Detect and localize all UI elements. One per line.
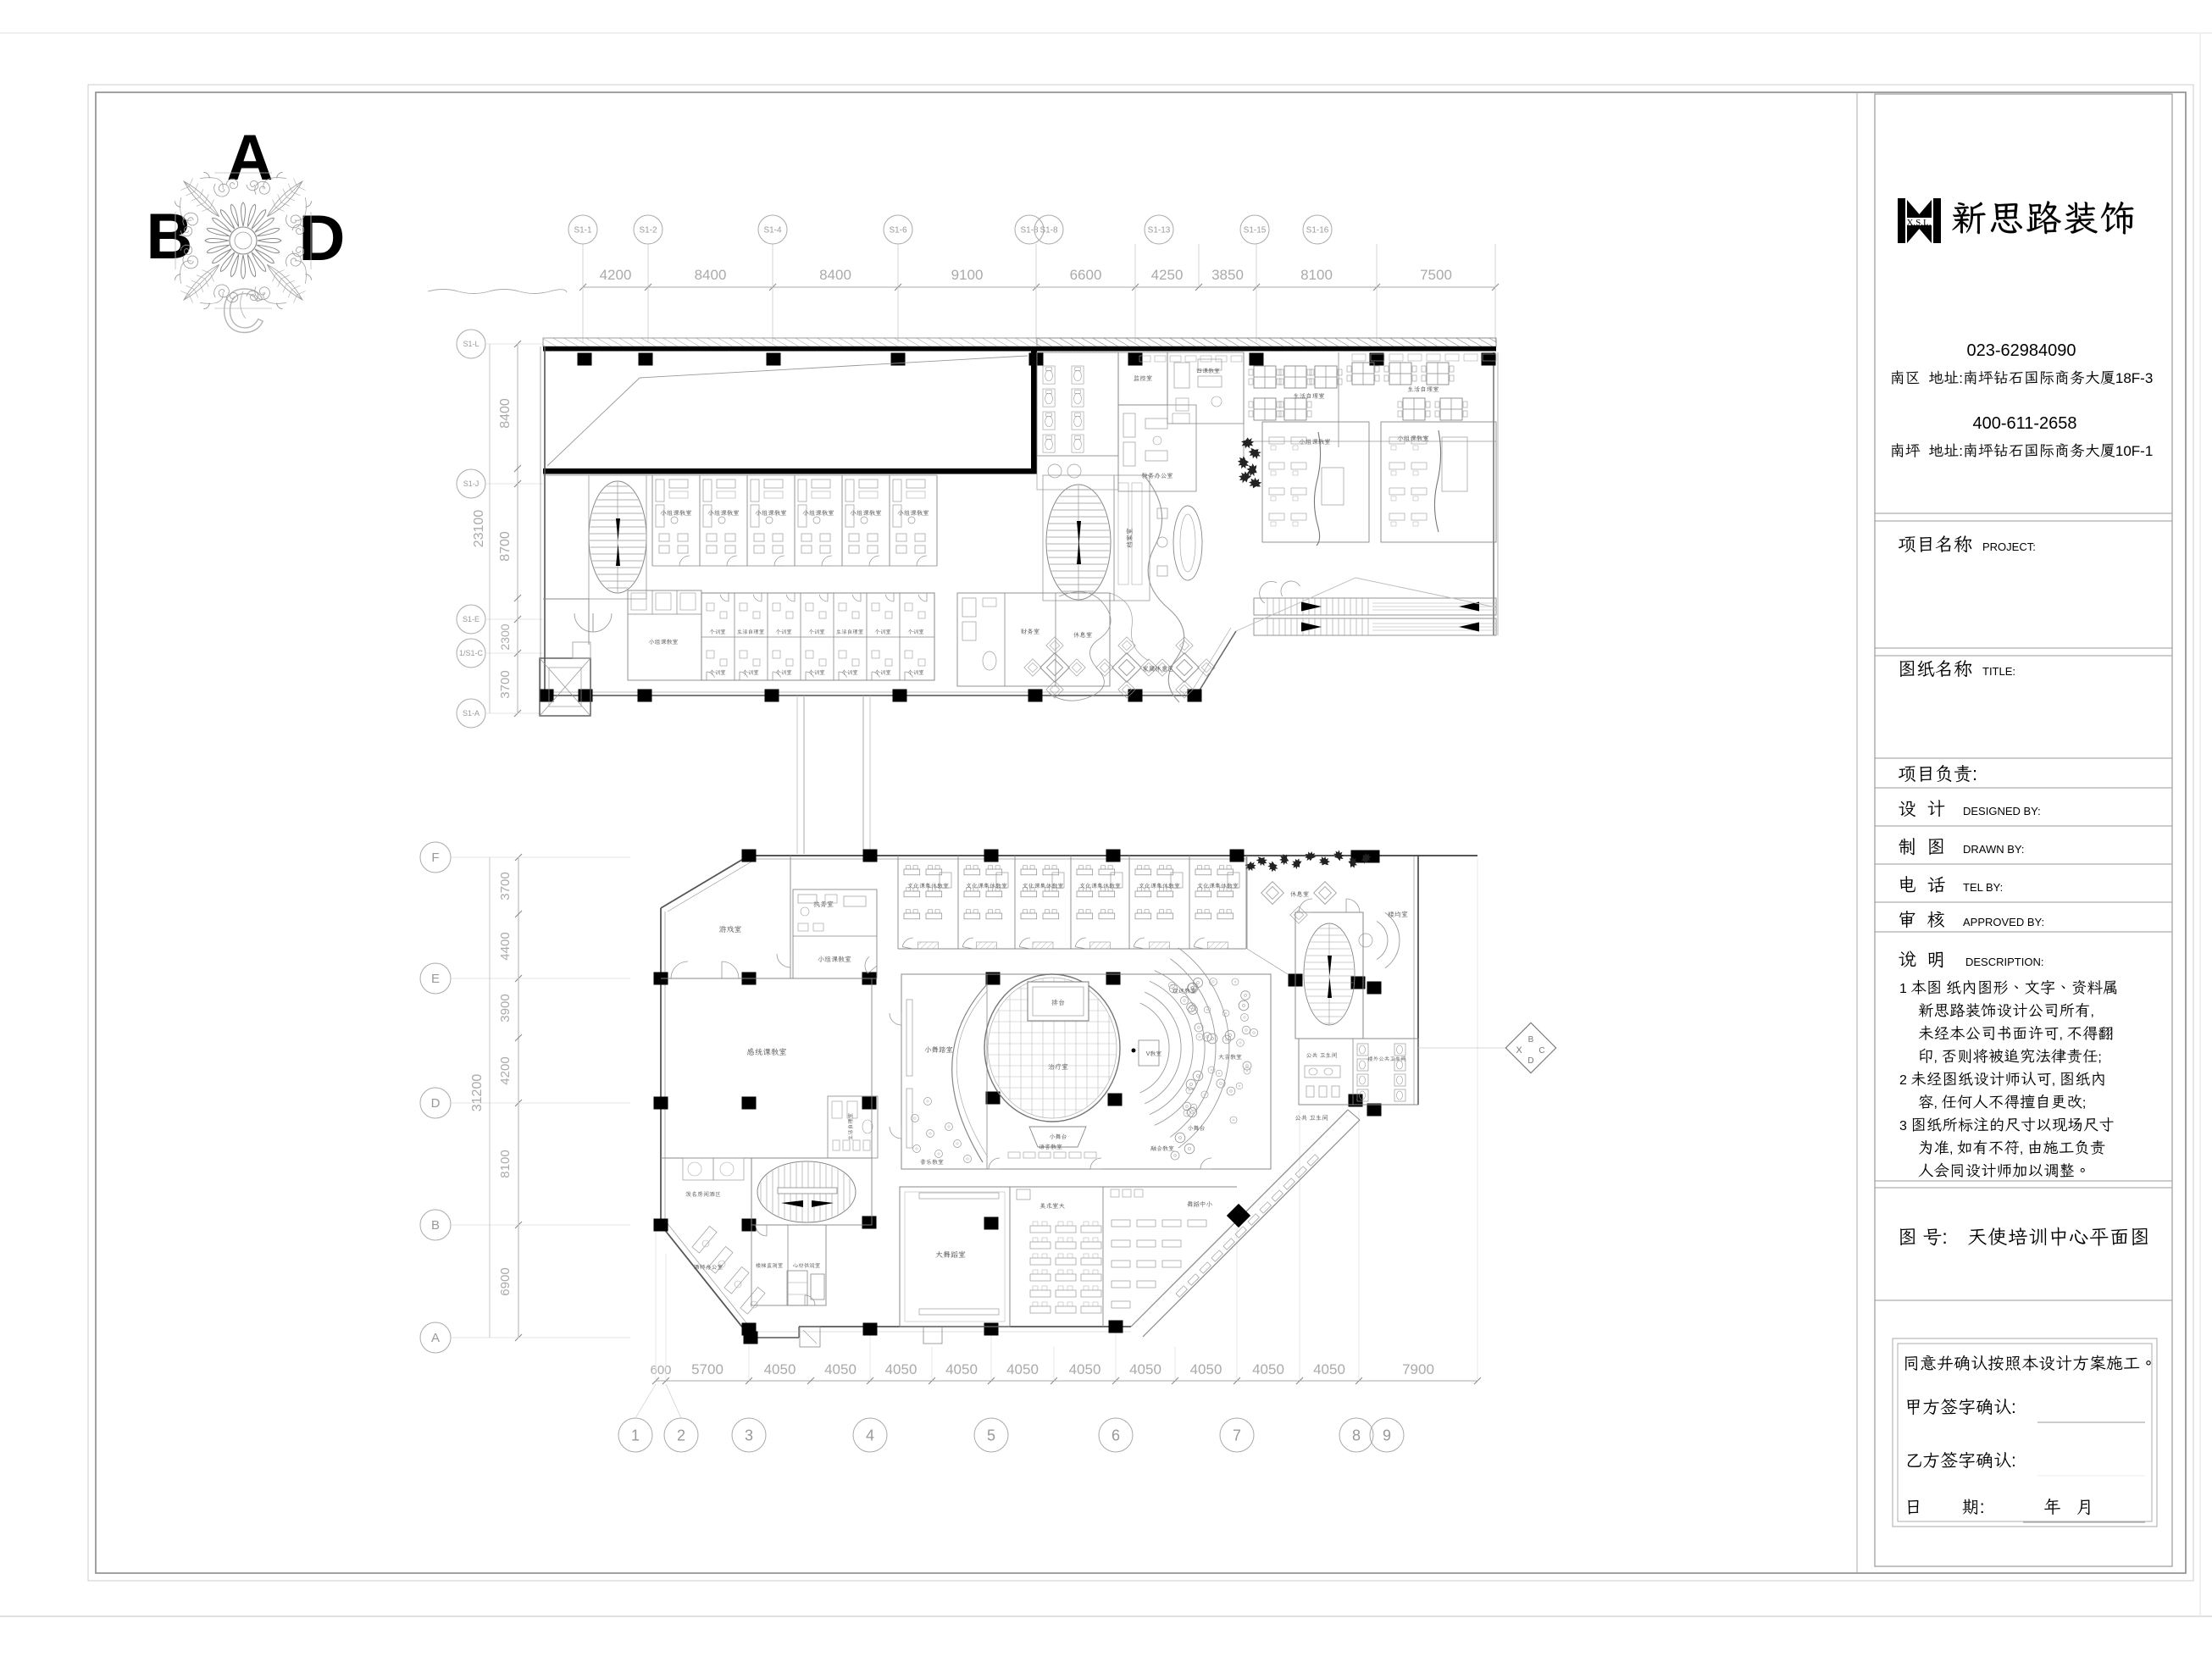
svg-text:X: X: [1516, 1045, 1522, 1056]
svg-text:S1-13: S1-13: [1148, 226, 1171, 236]
svg-text:S1-J: S1-J: [463, 479, 480, 488]
svg-text:1/S1-C: 1/S1-C: [459, 649, 484, 657]
svg-text:4050: 4050: [824, 1361, 857, 1377]
svg-text:,: ,: [2060, 1028, 2063, 1042]
svg-text:PROJECT:: PROJECT:: [1982, 540, 2036, 553]
svg-text:;: ;: [2098, 1050, 2101, 1065]
svg-text:4250: 4250: [1151, 267, 1184, 283]
svg-text:9: 9: [1383, 1427, 1391, 1444]
svg-text:APPROVED BY:: APPROVED BY:: [1963, 916, 2044, 928]
svg-text:8: 8: [1352, 1427, 1361, 1444]
svg-text:3700: 3700: [498, 872, 513, 900]
svg-text:4050: 4050: [945, 1361, 978, 1377]
svg-text:4050: 4050: [885, 1361, 918, 1377]
svg-text:2300: 2300: [498, 623, 512, 650]
svg-text::: :: [1972, 763, 1977, 784]
svg-text:F: F: [431, 851, 439, 865]
svg-text:8400: 8400: [695, 267, 727, 283]
svg-text:B: B: [147, 201, 193, 273]
svg-text:4200: 4200: [600, 267, 632, 283]
svg-text:S1-4: S1-4: [763, 226, 782, 236]
svg-text:4050: 4050: [764, 1361, 796, 1377]
svg-text::: :: [1959, 443, 1963, 459]
svg-text:1: 1: [1899, 982, 1907, 996]
svg-text:400-611-2658: 400-611-2658: [1972, 414, 2076, 433]
svg-text:,: ,: [2091, 1005, 2094, 1019]
svg-text:4050: 4050: [1006, 1361, 1039, 1377]
svg-text:3: 3: [1899, 1119, 1907, 1133]
svg-text:8700: 8700: [498, 531, 513, 562]
svg-text:8400: 8400: [819, 267, 851, 283]
svg-text:,: ,: [2052, 1073, 2055, 1088]
svg-text:6: 6: [1112, 1427, 1120, 1444]
svg-text:4050: 4050: [1069, 1361, 1101, 1377]
svg-text:6900: 6900: [498, 1267, 513, 1295]
svg-text:31200: 31200: [470, 1074, 485, 1112]
svg-text:4050: 4050: [1313, 1361, 1345, 1377]
svg-text:,: ,: [2020, 1142, 2023, 1156]
svg-text:;: ;: [2082, 1096, 2086, 1111]
svg-text:A: A: [431, 1331, 440, 1345]
svg-text:,: ,: [1949, 1142, 1953, 1156]
svg-text:X.S.L.: X.S.L.: [1906, 218, 1931, 228]
svg-text:S1-1: S1-1: [574, 226, 592, 236]
svg-text:DESCRIPTION:: DESCRIPTION:: [1965, 956, 2043, 968]
svg-text:8400: 8400: [498, 398, 513, 429]
svg-text:B: B: [431, 1218, 440, 1233]
svg-text:,: ,: [1934, 1096, 1938, 1111]
svg-text:TEL BY:: TEL BY:: [1963, 881, 2003, 894]
svg-text:B: B: [1528, 1035, 1534, 1045]
svg-text:V: V: [1146, 1051, 1150, 1057]
svg-text:4050: 4050: [1190, 1361, 1222, 1377]
svg-text:3850: 3850: [1211, 267, 1244, 283]
svg-text:D: D: [431, 1096, 441, 1111]
svg-text:600: 600: [650, 1363, 671, 1377]
svg-text::: :: [1959, 370, 1963, 386]
svg-text:DESIGNED BY:: DESIGNED BY:: [1963, 805, 2041, 817]
svg-text:7500: 7500: [1420, 267, 1452, 283]
svg-text:DRAWN BY:: DRAWN BY:: [1963, 843, 2024, 856]
svg-text:7: 7: [1233, 1427, 1241, 1444]
svg-text:TITLE:: TITLE:: [1982, 665, 2015, 678]
svg-text:S1-8: S1-8: [1039, 226, 1058, 236]
svg-text::: :: [1980, 1498, 1985, 1517]
svg-text:2: 2: [1899, 1073, 1907, 1088]
svg-text:2: 2: [677, 1427, 685, 1444]
svg-text:9100: 9100: [951, 267, 984, 283]
svg-text:S1-8: S1-8: [1020, 226, 1039, 236]
svg-text:8100: 8100: [498, 1150, 513, 1178]
svg-text:4050: 4050: [1129, 1361, 1161, 1377]
svg-text:S1-L: S1-L: [463, 340, 479, 348]
svg-text:S1-E: S1-E: [463, 615, 480, 623]
svg-text:4050: 4050: [1252, 1361, 1284, 1377]
svg-text:,: ,: [1934, 1050, 1938, 1065]
svg-text:5: 5: [987, 1427, 995, 1444]
svg-text:E: E: [431, 972, 440, 986]
svg-text:18F-3: 18F-3: [2115, 370, 2153, 386]
svg-text:S1-2: S1-2: [639, 226, 657, 236]
svg-text:C: C: [1538, 1046, 1544, 1056]
svg-text:023-62984090: 023-62984090: [1966, 341, 2076, 360]
svg-text:5700: 5700: [691, 1361, 723, 1377]
svg-text:3700: 3700: [498, 670, 513, 698]
svg-text:D: D: [1527, 1056, 1533, 1066]
svg-text:S1-A: S1-A: [463, 709, 480, 718]
svg-text:4400: 4400: [498, 932, 513, 960]
svg-text:6600: 6600: [1070, 267, 1102, 283]
svg-text:10F-1: 10F-1: [2115, 443, 2153, 459]
svg-text:8100: 8100: [1300, 267, 1333, 283]
svg-text:3900: 3900: [498, 994, 513, 1022]
svg-text:1: 1: [631, 1427, 640, 1444]
svg-text::: :: [2011, 1398, 2016, 1417]
svg-text:S1-16: S1-16: [1306, 226, 1329, 236]
svg-text:23100: 23100: [472, 510, 486, 548]
svg-text:S1-15: S1-15: [1244, 226, 1267, 236]
svg-text:3: 3: [745, 1427, 753, 1444]
svg-text::: :: [2011, 1451, 2016, 1471]
svg-text::: :: [1942, 1226, 1947, 1248]
svg-text:4200: 4200: [498, 1056, 513, 1084]
svg-text:7900: 7900: [1402, 1361, 1434, 1377]
svg-text:S1-6: S1-6: [889, 226, 907, 236]
svg-text:4: 4: [866, 1427, 874, 1444]
